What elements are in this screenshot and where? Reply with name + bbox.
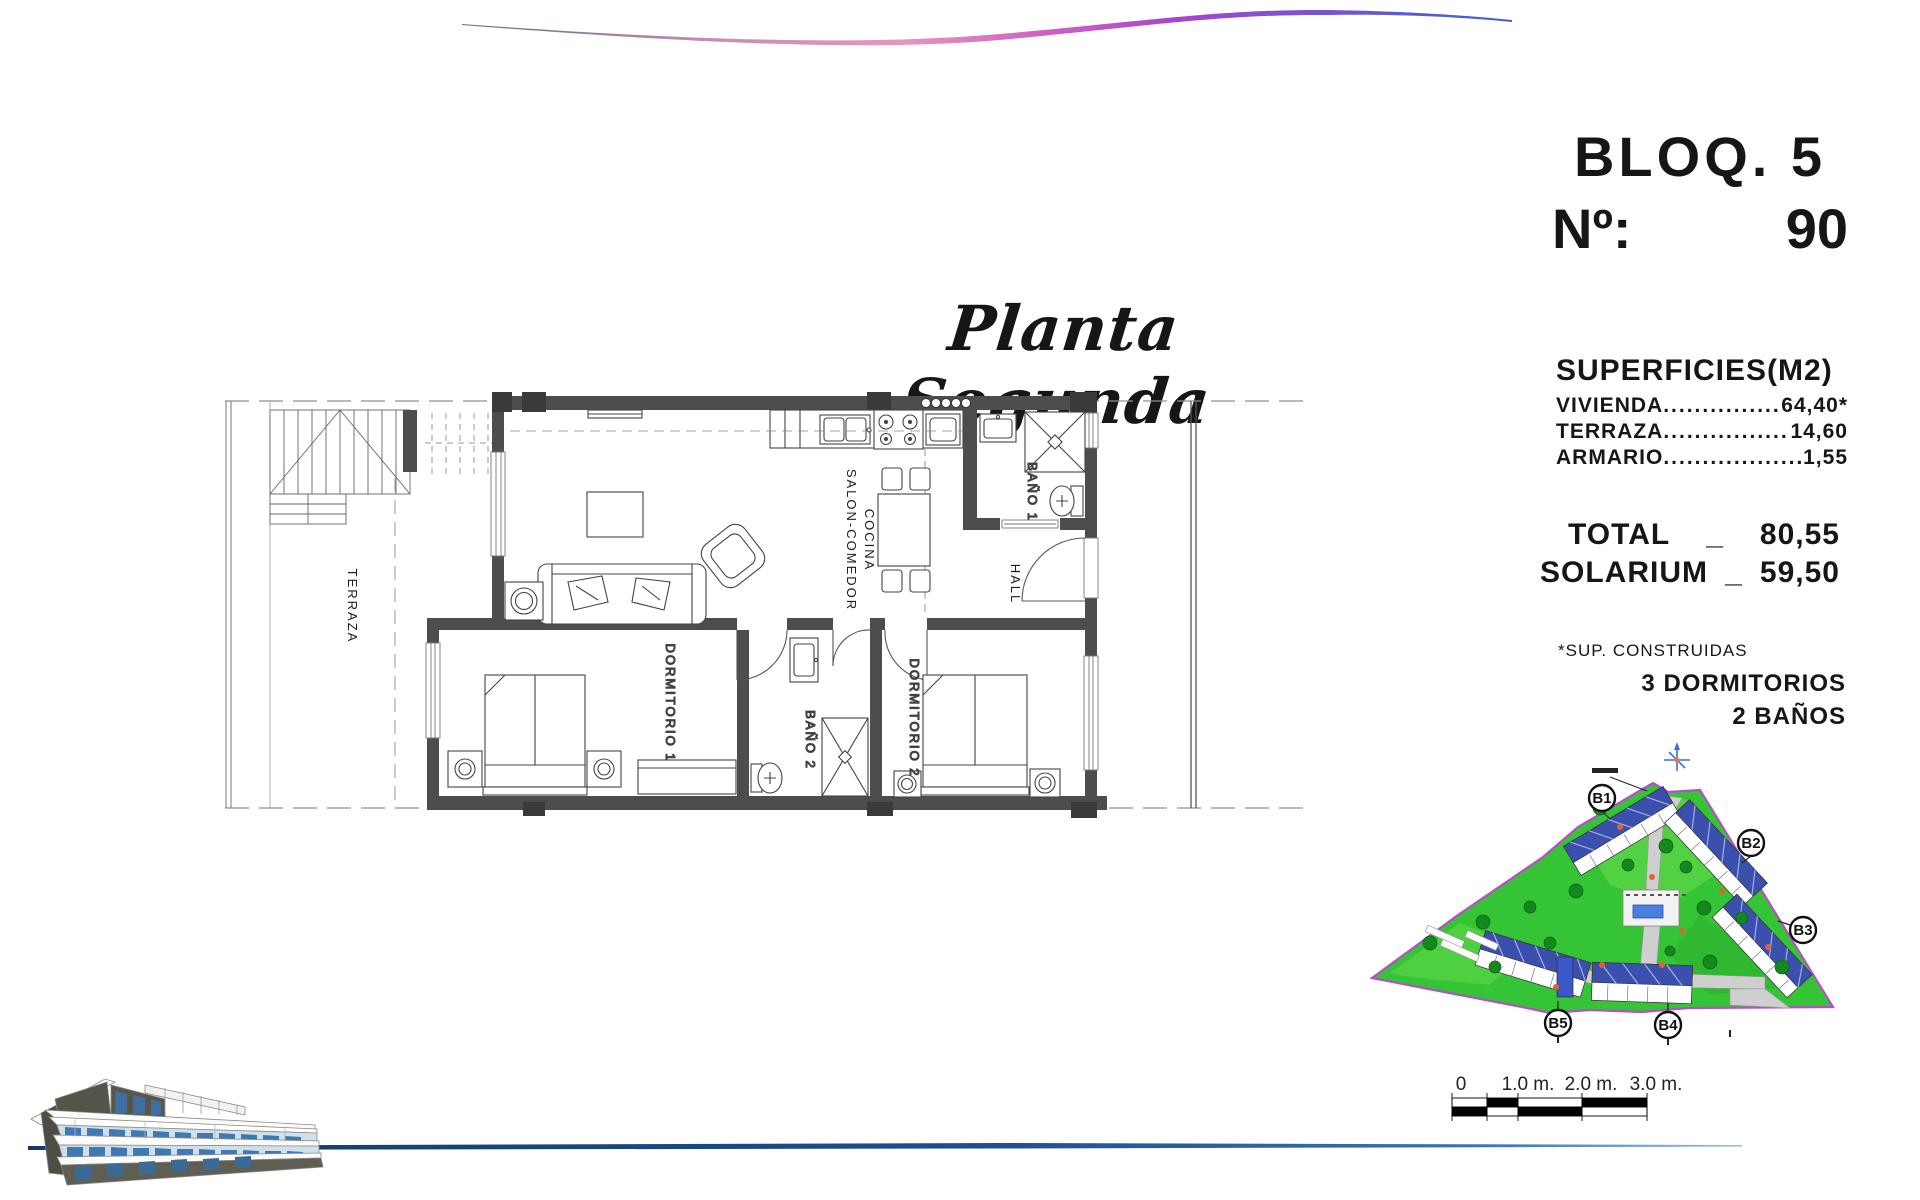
svg-text:3.0 m.: 3.0 m. (1630, 1074, 1683, 1095)
svg-text:B4: B4 (1658, 1017, 1678, 1034)
total-value: 80,55 (1760, 518, 1840, 552)
svg-text:B5: B5 (1548, 1015, 1567, 1032)
plan-sheet: Planta Segunda BLOQ. 5 Nº: 90 SUPERFICIE… (0, 0, 1920, 1200)
living-room (505, 492, 769, 624)
room-label-bano1: BAÑO 1 (1025, 462, 1040, 522)
svg-text:2.0 m.: 2.0 m. (1565, 1074, 1618, 1095)
unit-number-value: 90 (1786, 196, 1848, 261)
pool-area (1623, 890, 1686, 926)
dresser (638, 760, 736, 794)
terraza-area: TERRAZA (226, 401, 492, 808)
surface-row-vivienda: VIVIENDA ...............................… (1556, 394, 1848, 420)
surfaces-footnote: *SUP. CONSTRUIDAS (1558, 641, 1838, 661)
room-label-dorm1: DORMITORIO 1 (663, 643, 678, 762)
svg-text:B3: B3 (1793, 922, 1812, 939)
svg-text:B2: B2 (1741, 835, 1760, 852)
room-label-bano2: BAÑO 2 (803, 710, 818, 770)
washbasin (980, 414, 1016, 442)
bathroom-1: BAÑO 1 (980, 412, 1085, 522)
nightstand (587, 751, 621, 787)
svg-text:0: 0 (1456, 1074, 1467, 1095)
building-b4 (1591, 962, 1692, 1003)
badge-b4: B4 (1655, 1012, 1681, 1038)
toilet (751, 763, 782, 793)
svg-text:1.0 m.: 1.0 m. (1502, 1074, 1555, 1095)
surface-row-armario: ARMARIO ................................… (1556, 446, 1848, 472)
decorative-wave (440, 0, 1540, 70)
badge-b3: B3 (1790, 917, 1816, 943)
unit-number-label: Nº: (1552, 196, 1632, 261)
shower (822, 718, 868, 796)
building-b5-annex (1557, 957, 1573, 997)
solarium-label: SOLARIUM (1540, 556, 1708, 590)
kitchen-sink (820, 415, 871, 444)
surfaces-table: VIVIENDA ...............................… (1556, 394, 1848, 472)
floor-plan: TERRAZA (210, 388, 1350, 833)
armchair (697, 520, 770, 593)
surface-value: 64,40* (1781, 394, 1848, 418)
solarium-value: 59,50 (1760, 556, 1840, 590)
surface-label: VIVIENDA (1556, 394, 1663, 418)
kitchen-stove (874, 410, 923, 449)
badge-b1: B1 (1589, 785, 1615, 811)
coffee-table (587, 492, 643, 537)
block-heading: BLOQ. 5 (1545, 124, 1855, 189)
washbasin (790, 638, 818, 682)
site-plan: B1 B2 B3 B4 B5 (1370, 715, 1910, 1075)
dot-leader: ...................................... (1663, 420, 1790, 444)
total-row: TOTAL _ 80,55 (1540, 518, 1840, 556)
solarium-row: SOLARIUM _ 59,50 (1540, 556, 1840, 594)
badge-b5: B5 (1545, 1010, 1571, 1036)
svg-text:B1: B1 (1592, 790, 1611, 807)
sofa (538, 564, 706, 624)
surface-value: 1,55 (1803, 446, 1848, 470)
totals-block: TOTAL _ 80,55 SOLARIUM _ 59,50 (1540, 518, 1840, 594)
dining-set (878, 468, 930, 592)
scale-bar-segments (1452, 1093, 1647, 1121)
dot-leader: ........................................ (1663, 446, 1803, 470)
solarium-separator: _ (1708, 556, 1760, 590)
stairs-above-dashed (425, 413, 492, 476)
toilet (1050, 486, 1083, 516)
room-label-terraza: TERRAZA (345, 569, 360, 644)
total-separator: _ (1670, 518, 1760, 552)
room-label-dorm2: DORMITORIO 2 (907, 658, 922, 777)
surfaces-heading: SUPERFICIES(M2) (1556, 354, 1856, 388)
kitchen-oven (926, 414, 960, 445)
compass-icon (1664, 742, 1690, 771)
side-table (505, 582, 543, 620)
bedroom-1: DORMITORIO 1 (448, 643, 736, 795)
bedrooms-count: 3 DORMITORIOS (1600, 670, 1846, 698)
total-label: TOTAL (1568, 518, 1670, 552)
bathroom-2: BAÑO 2 (751, 638, 868, 796)
scale-bar: 0 1.0 m. 2.0 m. 3.0 m. (1440, 1072, 1710, 1132)
surface-label: TERRAZA (1556, 420, 1663, 444)
surface-value: 14,60 (1790, 420, 1848, 444)
room-label-hall: HALL (1008, 564, 1023, 605)
building-rendering (15, 1055, 345, 1200)
vent-row (922, 399, 971, 408)
badge-b2: B2 (1738, 830, 1764, 856)
site-annotations (1592, 742, 1690, 791)
room-label-salon: SALON-COMEDOR (844, 469, 859, 611)
nightstand (448, 751, 482, 787)
surface-label: ARMARIO (1556, 446, 1663, 470)
stairs (270, 410, 410, 524)
nightstand (1030, 769, 1060, 797)
pool (1633, 905, 1663, 918)
surface-row-terraza: TERRAZA ................................… (1556, 420, 1848, 446)
room-label-cocina: COCINA (862, 509, 877, 572)
dot-leader: ...................................... (1663, 394, 1781, 418)
unit-number-row: Nº: 90 (1552, 196, 1848, 261)
bedroom-2: DORMITORIO 2 (894, 658, 1060, 797)
